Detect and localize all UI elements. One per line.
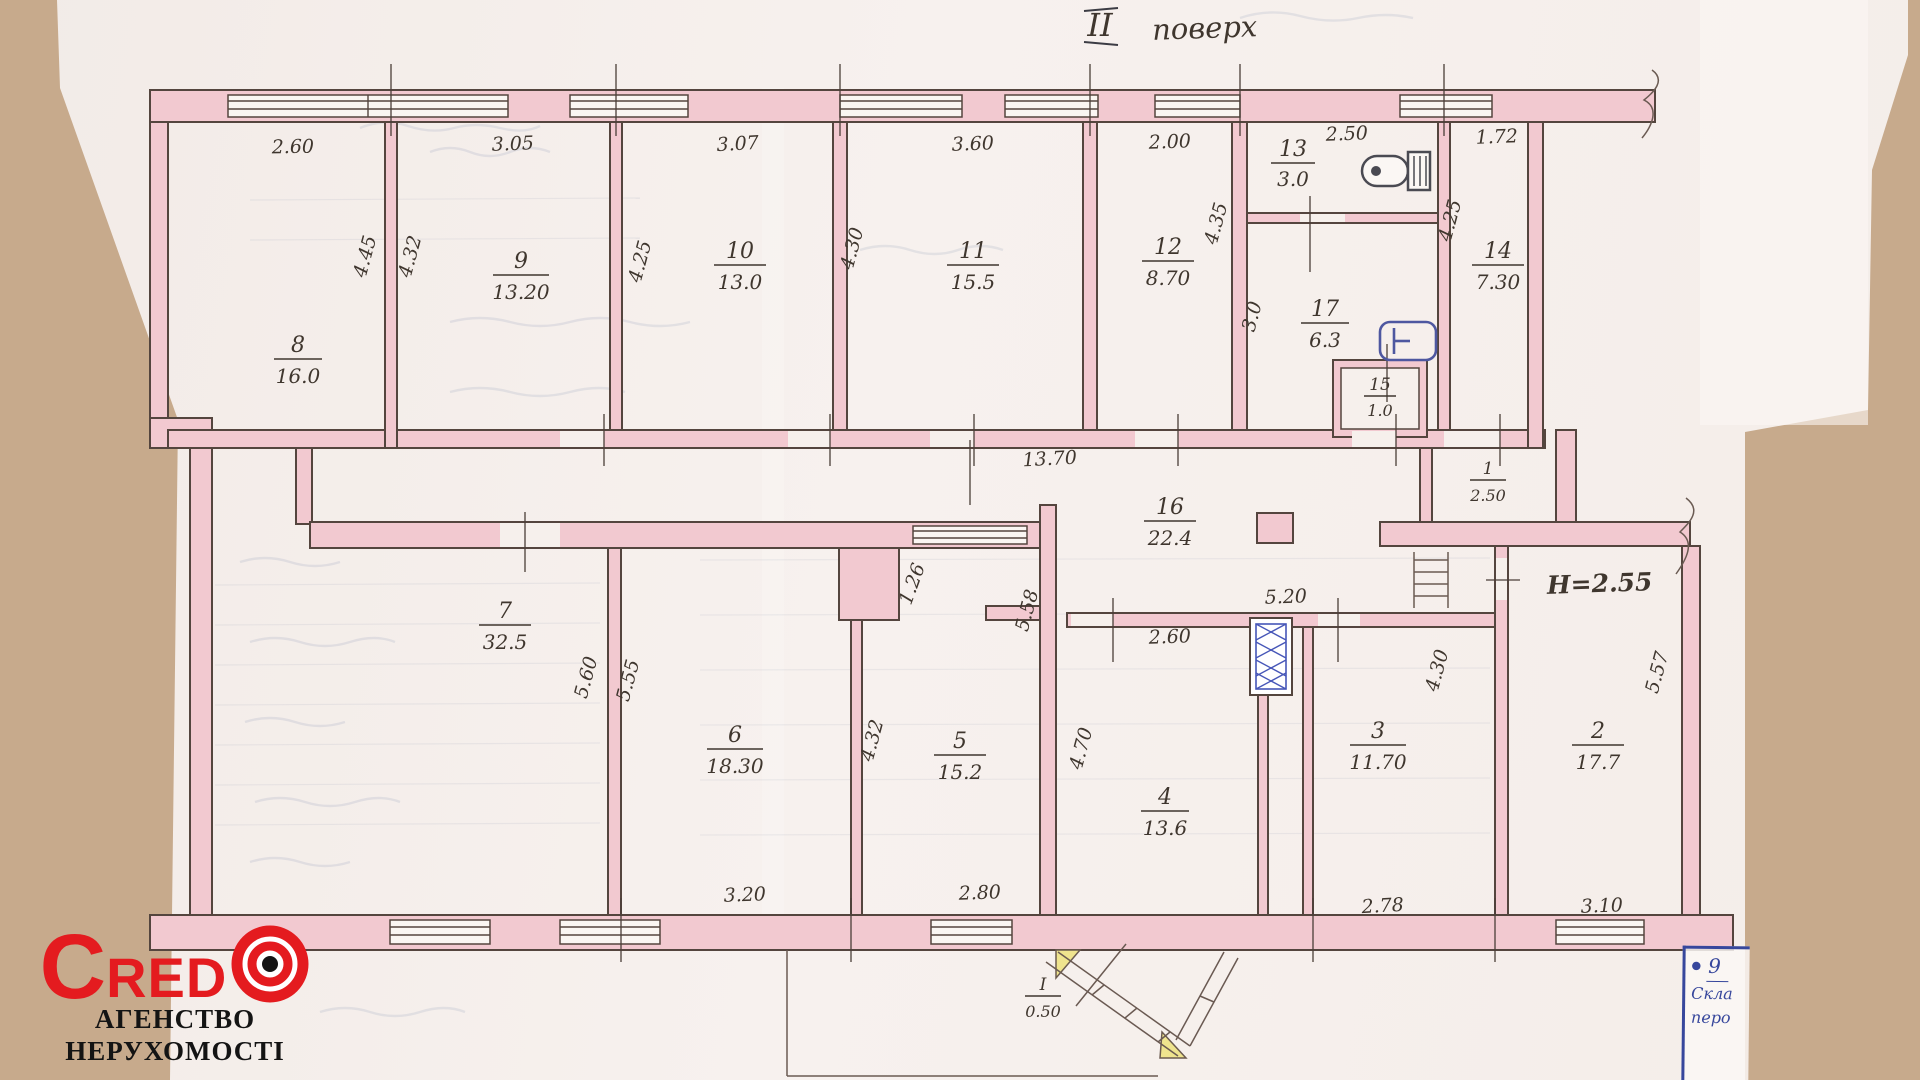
dimension-label: 3.07	[716, 132, 760, 156]
dimension-label: 4.35	[1200, 200, 1232, 248]
room-number: 6	[728, 723, 742, 748]
room-label-16: 16 22.4	[1144, 495, 1196, 550]
dimension-label: 5.57	[1641, 648, 1673, 695]
room-number: 15	[1369, 375, 1391, 395]
logo-tagline-line1: АГЕНСТВО	[95, 1004, 255, 1036]
sheet-fold-strip	[1700, 0, 1868, 425]
logo-tagline-line2: НЕРУХОМОСТІ	[65, 1036, 285, 1068]
dimension-label: 3.10	[1580, 894, 1623, 917]
room-area: 13.20	[492, 280, 550, 304]
room-area: 22.4	[1147, 526, 1193, 550]
room-area: 7.30	[1476, 270, 1521, 294]
dimension-label: 2.78	[1360, 894, 1404, 918]
room-number: 12	[1154, 235, 1182, 260]
room-label-17: 17 6.3	[1301, 297, 1349, 352]
room-label-10: 10 13.0	[714, 239, 766, 294]
room-area: 32.5	[483, 630, 528, 654]
walls	[150, 90, 1733, 950]
credo-brand: CRED	[40, 924, 311, 1004]
room-number: 16	[1156, 495, 1184, 520]
sheet-crease	[762, 88, 784, 950]
dimension-label: 2.60	[271, 136, 315, 159]
room-area: 1.0	[1367, 401, 1392, 420]
logo-letters-red: RED	[106, 952, 227, 1004]
dimension-label: 3.60	[951, 132, 994, 155]
stamp-number: 9	[1706, 951, 1729, 982]
logo-letter-c: C	[40, 932, 106, 1004]
room-area: 15.5	[951, 270, 996, 294]
dimension-label: 4.25	[624, 238, 656, 286]
room-label-9: 9 13.20	[492, 249, 550, 304]
room-label-13: 13 3.0	[1271, 137, 1315, 191]
flue-pillar	[1257, 513, 1293, 543]
room-area: 6.3	[1309, 328, 1341, 352]
room-number: 8	[291, 333, 305, 358]
floor-title-numeral: II	[1086, 6, 1114, 44]
closet-room-15	[1333, 360, 1427, 437]
ceiling-height-note: Н=2.55	[1545, 567, 1652, 600]
room-number: 1	[1483, 459, 1494, 479]
dimension-label: 5.20	[1264, 585, 1307, 608]
room-number: 14	[1484, 239, 1512, 264]
room-area: 8.70	[1146, 266, 1191, 290]
windows-bottom-wall	[390, 526, 1644, 944]
room-area: 17.7	[1576, 750, 1621, 774]
dimension-label: 1.72	[1475, 125, 1518, 148]
room-number: 2	[1590, 719, 1605, 744]
room-number: 9	[514, 249, 528, 274]
room-area: 13.0	[718, 270, 763, 294]
floorplan-drawing: II поверх Н=2.55 8 16.0 9 13.20 10 13.0 …	[0, 0, 1920, 1080]
room-number: 10	[726, 239, 754, 264]
room-label-8: 8 16.0	[274, 333, 322, 388]
registry-stamp: ● 9 Скла перо	[1681, 946, 1749, 1080]
stamp-line2: перо	[1691, 1006, 1749, 1031]
room-label-14: 14 7.30	[1472, 239, 1524, 294]
dimension-label: 1.26	[895, 560, 930, 607]
room-number: 11	[959, 239, 987, 264]
floor-title-word: поверх	[1152, 9, 1258, 47]
dimension-label: 5.60	[570, 654, 602, 701]
dimension-label: 2.50	[1324, 122, 1368, 145]
dimension-label: 2.00	[1147, 130, 1191, 153]
toilet-icon	[1362, 152, 1430, 190]
room-label-12: 12 8.70	[1142, 235, 1194, 290]
room-area: 15.2	[938, 760, 983, 784]
room-area: 2.50	[1469, 486, 1506, 505]
credo-logo: CRED АГЕНСТВО НЕРУХОМОСТІ	[20, 924, 330, 1068]
dimension-label: 4.30	[1421, 647, 1453, 695]
room-number: 3	[1371, 719, 1385, 744]
room-label-porch: I 0.50	[1025, 975, 1061, 1021]
vent-shaft-icon	[1250, 618, 1292, 695]
room-area: 11.70	[1349, 750, 1407, 774]
dimension-label: 3.05	[491, 132, 534, 155]
room-number: 4	[1157, 785, 1172, 810]
room-number: I	[1039, 975, 1047, 995]
room-label-7: 7 32.5	[479, 599, 531, 654]
entrance-stairs-icon	[787, 944, 1238, 1076]
room-label-4: 4 13.6	[1141, 785, 1189, 840]
room-label-6: 6 18.30	[706, 723, 764, 778]
room-area: 3.0	[1277, 167, 1309, 191]
floor-title: II поверх	[1084, 6, 1258, 47]
dimension-label: 4.32	[394, 233, 426, 281]
room-number: 7	[498, 599, 512, 624]
dimension-label: 4.70	[1065, 725, 1097, 773]
room-label-5: 5 15.2	[934, 729, 986, 784]
dimension-label: 2.60	[1147, 625, 1191, 648]
dimension-label: 4.45	[349, 233, 381, 281]
wall-break-marks	[1642, 70, 1694, 574]
stair-flight-icon	[1414, 552, 1448, 608]
logo-target-icon	[230, 924, 310, 1004]
dimension-label: 2.80	[957, 881, 1001, 904]
room-area: 18.30	[706, 754, 764, 778]
stamp-line1: Скла	[1691, 982, 1749, 1007]
room-label-3: 3 11.70	[1349, 719, 1407, 774]
room-number: 5	[953, 729, 967, 754]
dimension-label: 3.20	[723, 883, 766, 906]
room-area: 16.0	[276, 364, 321, 388]
room-label-2: 2 17.7	[1572, 719, 1624, 774]
dimension-label: 5.58	[1011, 587, 1043, 634]
room-area: 0.50	[1025, 1002, 1061, 1021]
dimension-label: 13.70	[1022, 447, 1077, 472]
room-number: 17	[1311, 297, 1339, 322]
room-area: 13.6	[1143, 816, 1188, 840]
scanned-floorplan-screenshot: II поверх Н=2.55 8 16.0 9 13.20 10 13.0 …	[0, 0, 1920, 1080]
room-number: 13	[1279, 137, 1307, 162]
sink-icon	[1380, 322, 1436, 360]
